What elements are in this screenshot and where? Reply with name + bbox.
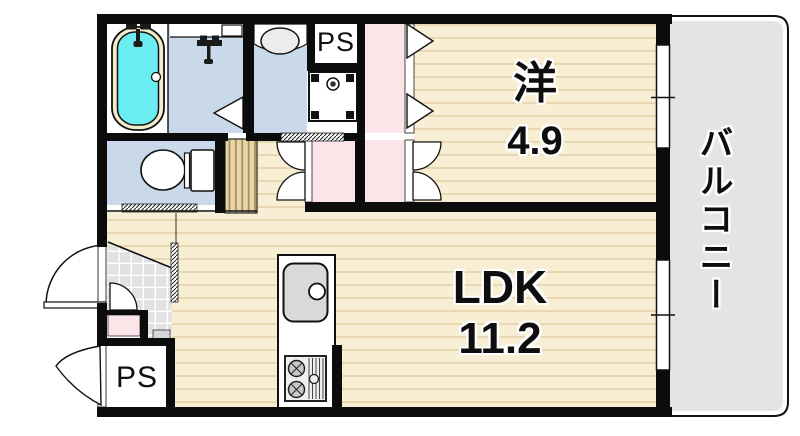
entrance-door — [44, 245, 106, 308]
hall-boundary-hatch — [171, 243, 178, 302]
western-room-label: 洋 — [465, 62, 605, 106]
entrance-small-box — [153, 330, 170, 339]
closet-upper — [365, 24, 405, 133]
closet-lower-right — [365, 140, 405, 202]
ldk-size: 11.2 — [420, 317, 580, 361]
shoe-cabinet-box — [108, 315, 140, 336]
closet-lower-left-track — [305, 140, 312, 202]
closet-lower-left — [312, 140, 355, 202]
shower-counter — [170, 24, 243, 37]
floor-plan: 洋 4.9 LDK 11.2 PS PS バルコニー — [0, 0, 800, 436]
pipe-space-bottom-door — [56, 345, 106, 407]
balcony-label: バルコニー — [696, 110, 730, 330]
kitchen-counter — [278, 255, 335, 408]
kitchen-stove — [285, 356, 326, 401]
pipe-space-top-label: PS — [313, 29, 359, 56]
kitchen-faucet — [309, 284, 325, 300]
louver-shelf — [225, 139, 257, 213]
western-room-size: 4.9 — [465, 121, 605, 161]
ldk-label: LDK — [420, 264, 580, 310]
washing-machine-pan — [309, 72, 357, 121]
western-room-floor — [414, 24, 656, 202]
toilet — [141, 150, 214, 191]
pipe-space-bottom-label: PS — [105, 363, 169, 393]
washroom-opening-hatch — [281, 133, 344, 141]
